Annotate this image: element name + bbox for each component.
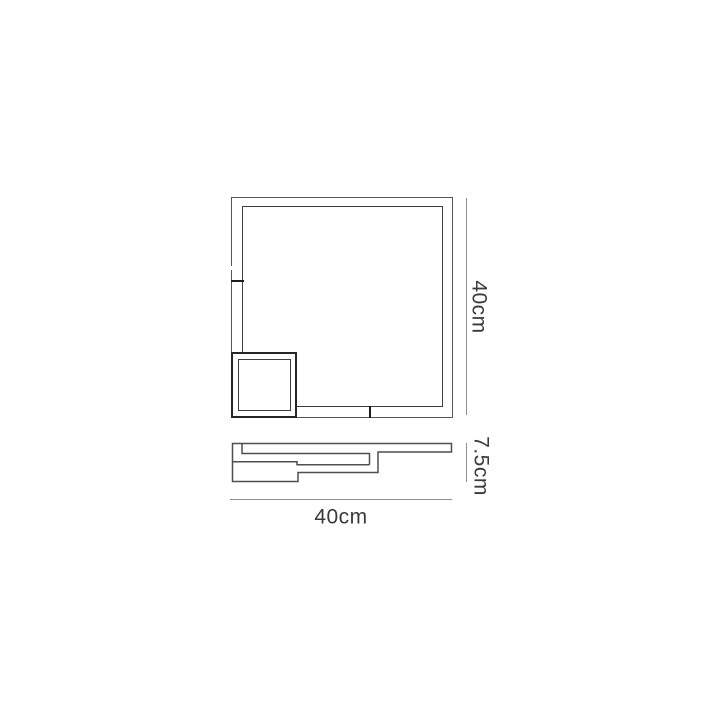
dimension-line-depth bbox=[466, 443, 468, 482]
dimension-label-height: 40cm bbox=[469, 280, 490, 333]
frame-left-joint-gap bbox=[229, 266, 235, 270]
diagram-canvas: 40cm 7.5cm 40cm bbox=[0, 0, 720, 720]
dimension-label-depth: 7.5cm bbox=[471, 436, 492, 496]
side-profile-inner-step-1 bbox=[242, 444, 370, 465]
dimension-line-width bbox=[230, 499, 452, 501]
dimension-label-width: 40cm bbox=[314, 507, 367, 528]
corner-box-inner-square bbox=[238, 359, 291, 411]
side-profile-inner-step-2 bbox=[233, 462, 370, 465]
side-profile-outline bbox=[233, 444, 452, 482]
frame-seam-left bbox=[231, 280, 244, 282]
frame-seam-bottom bbox=[369, 406, 371, 418]
